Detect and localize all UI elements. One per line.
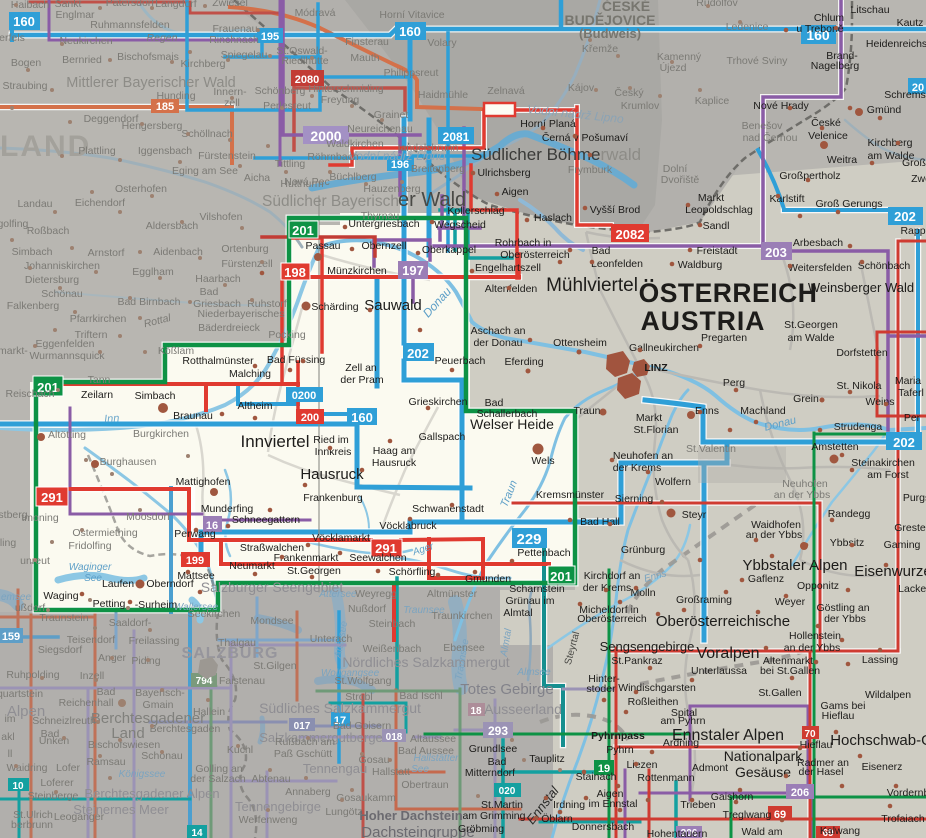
svg-text:Windischgarsten: Windischgarsten [618,682,696,694]
svg-text:Freyung: Freyung [321,94,360,106]
svg-text:Malching: Malching [229,368,271,380]
svg-text:Roßbach: Roßbach [27,225,70,237]
svg-text:Fridolfing: Fridolfing [68,540,111,552]
svg-text:Altheim: Altheim [237,400,272,412]
svg-text:der Hasel: der Hasel [799,766,844,778]
svg-text:10: 10 [12,781,24,792]
svg-text:Mühlviertel: Mühlviertel [546,275,638,296]
svg-text:Oberösterreich: Oberösterreich [500,249,570,261]
svg-text:Schörfling: Schörfling [389,566,436,578]
svg-text:der Ybbs: der Ybbs [824,613,866,625]
svg-text:See: See [84,573,102,584]
svg-text:Innkreis: Innkreis [315,446,352,458]
svg-text:Machland: Machland [740,405,786,417]
svg-text:Ruhpolding: Ruhpolding [6,669,59,681]
svg-text:Aldersbach: Aldersbach [146,220,199,232]
svg-text:Simbach: Simbach [12,246,53,258]
svg-text:14: 14 [191,828,203,838]
svg-text:Zelnavá: Zelnavá [487,85,525,97]
svg-text:Kalwang: Kalwang [820,825,860,837]
svg-text:der Krems: der Krems [613,462,661,474]
svg-text:Randegg: Randegg [828,508,871,520]
svg-text:berbrunn: berbrunn [11,819,53,831]
svg-text:Peuerbach: Peuerbach [435,355,486,367]
svg-text:Volary: Volary [427,37,457,49]
svg-text:Dvořiště: Dvořiště [661,174,700,186]
svg-text:Amstetten: Amstetten [811,441,858,453]
svg-text:Greste: Greste [894,522,926,534]
svg-text:Pettenbach: Pettenbach [517,547,570,559]
svg-text:Büchlberg: Büchlberg [329,171,376,183]
svg-text:Südlicher Böhmerwald: Südlicher Böhmerwald [471,145,641,164]
svg-text:Schallerbach: Schallerbach [477,408,538,420]
svg-text:Südlicher Bayerisch: Südlicher Bayerisch [262,193,399,210]
svg-text:Hollenstein: Hollenstein [789,630,841,642]
svg-text:Markt: Markt [636,412,662,424]
svg-text:Taferl: Taferl [898,387,924,399]
svg-text:Gröbming: Gröbming [458,823,504,835]
svg-text:Karlstift: Karlstift [769,193,804,205]
svg-text:Haag am: Haag am [373,445,416,457]
svg-text:291: 291 [41,490,63,505]
svg-text:Liezen: Liezen [627,759,658,771]
svg-text:Zeilarn: Zeilarn [81,389,113,401]
svg-text:Iggensbach: Iggensbach [138,145,192,157]
svg-text:Eichendorf: Eichendorf [75,197,125,209]
svg-text:Gesäuse: Gesäuse [735,764,791,780]
svg-text:Sauwald: Sauwald [364,297,422,314]
svg-text:Großraming: Großraming [676,594,732,606]
svg-text:Dorfstetten: Dorfstetten [836,347,888,359]
svg-text:160: 160 [351,410,373,425]
svg-text:Gmain: Gmain [143,699,174,711]
svg-text:Kájov: Kájov [568,82,595,94]
svg-text:Strudenga: Strudenga [834,421,883,433]
svg-text:Weitersfelden: Weitersfelden [788,262,852,274]
svg-text:Ardning: Ardning [663,737,699,749]
svg-text:Waginger: Waginger [69,562,112,573]
svg-text:Eisenwurze: Eisenwurze [854,563,926,580]
svg-text:Neumarkt: Neumarkt [229,560,275,572]
svg-text:St.Georgen: St.Georgen [784,319,838,331]
svg-text:an der Ybbs: an der Ybbs [774,489,830,501]
svg-text:Pyhrnpass: Pyhrnpass [591,730,645,742]
svg-text:Vöcklabruck: Vöcklabruck [379,520,437,532]
svg-text:Litschau: Litschau [850,4,889,16]
svg-text:Leoganger: Leoganger [54,811,105,823]
svg-text:erfels: erfels [0,32,25,44]
svg-text:Hausruck: Hausruck [372,457,417,469]
svg-text:Plattling: Plattling [78,145,116,157]
svg-text:Grünau im: Grünau im [505,595,554,607]
svg-text:Hochschwab-Gr: Hochschwab-Gr [830,732,926,749]
svg-text:Kautz: Kautz [897,17,924,29]
svg-text:Gaflenz: Gaflenz [748,573,784,585]
svg-text:Wurmannsquick: Wurmannsquick [29,350,105,362]
svg-text:Gmünd: Gmünd [867,104,902,116]
svg-text:Bernried: Bernried [62,54,102,66]
svg-text:im Ennstal: im Ennstal [588,798,637,810]
svg-text:Lofer: Lofer [56,762,80,774]
svg-text:Fürstenzell: Fürstenzell [221,258,272,270]
svg-text:0200: 0200 [292,390,316,402]
svg-text:Gaishorn: Gaishorn [711,791,754,803]
svg-text:Horní Vitavice: Horní Vitavice [379,9,444,21]
svg-text:Schwanenstadt: Schwanenstadt [412,503,484,515]
svg-text:Nußdorf: Nußdorf [348,603,386,615]
svg-text:Simbach: Simbach [135,390,176,402]
svg-text:Burghausen: Burghausen [100,456,157,468]
svg-text:Neuhofen an: Neuhofen an [613,450,673,462]
svg-text:Purgst: Purgst [903,492,926,504]
svg-text:Almsee: Almsee [516,667,551,678]
svg-text:195: 195 [261,31,279,43]
svg-text:Rudolfov: Rudolfov [696,0,738,9]
svg-text:Steinakirchen: Steinakirchen [851,457,915,469]
svg-text:Fürstenstein: Fürstenstein [198,150,256,162]
svg-text:Almtal: Almtal [503,607,532,619]
svg-text:Straßwalchen: Straßwalchen [240,542,304,554]
svg-text:Rotthalmünster: Rotthalmünster [182,355,254,367]
svg-text:Módravá: Módravá [295,7,336,19]
svg-text:Gosau: Gosau [359,754,390,766]
svg-text:Bad Goisern: Bad Goisern [333,720,392,732]
svg-text:nad Černou: nad Černou [743,131,798,144]
svg-text:Innviertel: Innviertel [241,432,310,451]
svg-text:Wald am: Wald am [741,826,782,838]
svg-text:Maria: Maria [895,375,921,387]
svg-text:Donnersbach: Donnersbach [572,821,635,833]
svg-text:203: 203 [765,245,787,260]
svg-text:293: 293 [488,724,508,738]
svg-text:Laufen: Laufen [102,578,134,590]
svg-text:ll: ll [8,748,13,760]
svg-text:Piding: Piding [131,655,160,667]
svg-text:Frankenburg: Frankenburg [303,492,363,504]
svg-text:Bad Hall: Bad Hall [580,516,620,528]
svg-text:am Pyhrn: am Pyhrn [661,715,706,727]
svg-text:Oberösterreichische: Oberösterreichische [656,613,790,630]
svg-text:Attersee: Attersee [318,589,357,600]
svg-text:Königssee: Königssee [119,769,166,780]
svg-text:Oberösterreich: Oberösterreich [577,613,647,625]
svg-text:Haarbach: Haarbach [195,273,241,285]
svg-text:Haidmühle: Haidmühle [418,89,468,101]
svg-text:Aidenbach: Aidenbach [153,246,203,258]
svg-text:Černá v Pošumaví: Černá v Pošumaví [542,131,628,144]
svg-text:Hallstätter: Hallstätter [413,753,459,764]
svg-text:Grieskirchen: Grieskirchen [409,396,468,408]
svg-text:Neukirchen: Neukirchen [59,35,112,47]
svg-text:Obertraun: Obertraun [401,779,448,791]
svg-text:Johanniskirchen: Johanniskirchen [24,260,100,272]
svg-text:Hunding: Hunding [156,90,195,102]
svg-text:Opponitz: Opponitz [797,580,839,592]
svg-text:160: 160 [399,24,421,39]
svg-text:Rapp: Rapp [900,225,925,237]
svg-text:201: 201 [550,569,572,584]
svg-text:Schrems: Schrems [884,89,925,101]
svg-text:Engelhartszell: Engelhartszell [475,262,541,274]
svg-text:Falkenberg: Falkenberg [7,300,60,312]
svg-text:(Budweis): (Budweis) [579,26,641,41]
svg-text:Ruhmannsfelden: Ruhmannsfelden [90,19,170,31]
svg-text:Grünburg: Grünburg [621,544,666,556]
svg-text:Annaberg: Annaberg [285,786,331,798]
svg-text:Irdning: Irdning [553,799,585,811]
svg-text:Trhové Sviny: Trhové Sviny [727,55,789,67]
svg-text:Gmunden: Gmunden [465,573,511,585]
svg-text:Weißenbach: Weißenbach [363,643,422,655]
svg-text:Sandl: Sandl [703,220,730,232]
svg-text:Nové Hrady: Nové Hrady [753,100,809,112]
svg-text:Waging: Waging [43,590,78,602]
svg-text:Traunstein: Traunstein [39,612,88,624]
svg-text:St.Gilgen: St.Gilgen [253,660,296,672]
svg-text:Perg: Perg [723,377,745,389]
svg-text:Mitterndorf: Mitterndorf [465,767,515,779]
svg-text:Aschach an: Aschach an [471,325,526,337]
svg-text:Horní Planá: Horní Planá [520,118,576,130]
svg-text:Hallein: Hallein [193,706,225,718]
svg-text:Mauth: Mauth [350,52,379,64]
svg-text:Aicha: Aicha [244,172,270,184]
svg-text:Wegscheid: Wegscheid [434,219,486,231]
svg-text:Altötting: Altötting [48,429,86,441]
svg-text:Tittling: Tittling [275,158,306,170]
svg-text:Neureichenau: Neureichenau [347,123,413,135]
svg-text:-Surheim: -Surheim [135,599,178,611]
svg-text:198: 198 [284,265,306,280]
svg-text:185: 185 [156,101,174,113]
svg-text:Tauplitz: Tauplitz [529,753,565,765]
svg-text:Obernzell: Obernzell [362,240,407,252]
svg-text:202: 202 [407,346,429,361]
svg-text:Riedlhütte: Riedlhütte [281,55,328,67]
svg-text:Seewalchen: Seewalchen [349,552,406,564]
svg-text:Kuchl: Kuchl [227,744,253,756]
svg-text:Ortenburg: Ortenburg [221,243,268,255]
svg-text:229: 229 [516,531,541,548]
svg-text:Ybbstaler Alpen: Ybbstaler Alpen [742,557,847,574]
svg-text:Iandelsbrunn: Iandelsbrunn [398,142,459,154]
svg-text:Leopoldschlag: Leopoldschlag [685,204,753,216]
svg-text:Leonfelden: Leonfelden [591,258,643,270]
svg-text:018: 018 [386,732,403,743]
svg-text:Petting: Petting [93,598,126,610]
svg-text:Rinchnach: Rinchnach [209,34,259,46]
svg-text:Thyrnau: Thyrnau [361,210,400,222]
svg-text:Eggenfelden: Eggenfelden [36,338,95,350]
svg-text:Zwe: Zwe [911,173,926,185]
svg-text:Schneegattern: Schneegattern [232,514,300,526]
svg-text:200: 200 [301,412,319,424]
svg-text:Sierning: Sierning [615,493,654,505]
svg-text:Traunkirchen: Traunkirchen [432,610,493,622]
svg-text:Hausruck: Hausruck [300,466,364,483]
svg-text:Bad Füssing: Bad Füssing [267,354,326,366]
svg-text:Zell an: Zell an [345,362,377,374]
svg-text:Scharnstein: Scharnstein [509,583,565,595]
svg-text:Niederbayerisches: Niederbayerisches [198,308,285,320]
svg-text:Aigen: Aigen [502,186,529,198]
svg-text:206: 206 [791,787,809,799]
svg-text:Bischofsmais: Bischofsmais [117,51,179,63]
svg-text:ÖSTERREICH: ÖSTERREICH [639,278,818,308]
svg-text:Pfarrkirchen: Pfarrkirchen [70,313,127,325]
svg-text:Ybbsitz: Ybbsitz [830,537,864,549]
svg-text:Saaldorf-: Saaldorf- [109,617,152,629]
svg-text:Benešov: Benešov [742,120,784,132]
svg-text:199: 199 [186,555,204,567]
svg-text:Groß Gerungs: Groß Gerungs [815,198,882,210]
svg-text:bei St.Gallen: bei St.Gallen [760,665,820,677]
svg-text:Ottensheim: Ottensheim [553,337,607,349]
svg-text:am Walde: am Walde [788,332,835,344]
svg-text:Eisenerz: Eisenerz [862,761,903,773]
svg-text:Stainach: Stainach [576,771,617,783]
svg-text:LINZ: LINZ [644,362,668,374]
svg-text:St. Nikola: St. Nikola [837,380,882,392]
svg-text:2082: 2082 [616,227,645,242]
svg-text:Rohrbach in: Rohrbach in [495,237,552,249]
svg-text:Siegsdorf: Siegsdorf [38,644,82,656]
svg-text:Unterlaussa: Unterlaussa [691,665,747,677]
svg-text:Burgkirchen: Burgkirchen [133,428,189,440]
svg-text:ngolfing: ngolfing [0,218,29,230]
svg-text:Vordernb: Vordernb [887,787,926,799]
svg-text:Totes Gebirge: Totes Gebirge [460,681,553,698]
svg-text:quartstein: quartstein [0,688,43,700]
svg-text:Křemže: Křemže [582,43,618,55]
svg-text:Treglwang: Treglwang [723,809,772,821]
svg-text:Lungötz: Lungötz [325,806,362,818]
svg-text:Inn: Inn [104,412,120,425]
svg-text:Oberndorf: Oberndorf [146,578,193,590]
svg-text:Ulrichsberg: Ulrichsberg [477,167,530,179]
svg-text:Ebensee: Ebensee [443,642,485,654]
svg-text:197: 197 [402,263,424,278]
svg-text:Reichenhall: Reichenhall [59,697,114,709]
svg-text:Kremsmünster: Kremsmünster [536,489,605,501]
svg-text:Faistenau: Faistenau [219,675,265,687]
svg-text:Hengersberg: Hengersberg [122,120,183,132]
svg-text:Bayerisch-: Bayerisch- [135,687,185,699]
svg-text:Perlesreut: Perlesreut [263,100,311,112]
svg-text:Waldburg: Waldburg [678,259,723,271]
svg-text:am Grimming: am Grimming [462,810,525,822]
svg-text:Kirchberg: Kirchberg [868,137,913,149]
svg-text:Freilassing: Freilassing [129,635,180,647]
svg-text:Weyer: Weyer [775,596,806,608]
svg-text:Zwiesel: Zwiesel [212,0,248,9]
svg-text:Tennengau: Tennengau [303,761,367,776]
svg-text:Ledenice: Ledenice [726,21,769,33]
svg-text:Ramsau: Ramsau [86,756,125,768]
svg-text:Traun: Traun [573,405,600,417]
svg-text:Braunau: Braunau [173,410,213,422]
svg-text:Vöcklamarkt: Vöcklamarkt [312,532,370,544]
svg-text:Patersdorf: Patersdorf [106,0,155,9]
svg-text:Gaming: Gaming [884,539,921,551]
svg-text:Moosdorf: Moosdorf [126,511,170,523]
svg-text:Pregarten: Pregarten [701,332,747,344]
svg-text:Freistadt: Freistadt [697,245,738,257]
svg-text:Abtenau: Abtenau [251,773,290,785]
svg-text:Paß Gschütt: Paß Gschütt [274,748,332,760]
svg-text:Steinbach: Steinbach [369,618,416,630]
svg-text:České: České [811,116,841,129]
svg-text:Inzell: Inzell [80,670,105,682]
svg-text:Voralpen: Voralpen [696,645,759,662]
svg-text:am Forst: am Forst [867,469,909,481]
svg-text:Seekirchen: Seekirchen [188,608,241,620]
svg-text:Eferding: Eferding [504,356,543,368]
svg-text:Hauzenberg: Hauzenberg [363,183,420,195]
svg-text:Hohentauern: Hohentauern [647,828,708,838]
svg-text:Schönau: Schönau [41,288,83,300]
svg-text:Haslach: Haslach [534,212,572,224]
svg-text:Tennengebirge: Tennengebirge [235,799,321,814]
svg-text:Weyregg: Weyregg [355,588,397,600]
svg-text:Werfenweng: Werfenweng [239,814,298,826]
svg-text:Waldkirchen: Waldkirchen [326,138,384,150]
svg-text:Nová Pec: Nová Pec [284,176,330,188]
svg-text:Ausseerland: Ausseerland [484,701,562,717]
svg-text:Schönbach: Schönbach [858,260,911,272]
svg-text:St.Georgen: St.Georgen [287,565,341,577]
svg-text:Bad Birnbach: Bad Birnbach [117,296,180,308]
svg-text:St.Pankraz: St.Pankraz [611,655,662,667]
svg-text:ling: ling [0,537,16,549]
svg-text:Per: Per [904,412,921,424]
svg-text:Lackenh: Lackenh [898,583,926,595]
svg-text:Gallspach: Gallspach [419,431,466,443]
svg-text:Passau: Passau [305,240,340,252]
svg-text:St.Valentin: St.Valentin [686,443,736,455]
svg-text:Regen: Regen [147,32,178,44]
svg-text:Wels: Wels [531,455,554,467]
svg-text:Tann: Tann [88,374,111,386]
svg-text:Kollerschlag: Kollerschlag [447,205,504,217]
svg-text:Admont: Admont [692,762,728,774]
svg-text:Waidring: Waidring [6,762,47,774]
svg-text:Finsterau: Finsterau [345,36,389,48]
svg-text:202: 202 [893,435,915,450]
svg-text:Arnstorf: Arnstorf [88,247,125,259]
svg-text:Weitra: Weitra [827,154,857,166]
svg-text:Rußbach am: Rußbach am [275,736,335,748]
svg-text:emsee: emsee [1,592,31,603]
svg-text:Schönberg: Schönberg [255,85,306,97]
svg-text:Reischach: Reischach [5,388,54,400]
svg-text:Vyšší Brod: Vyšší Brod [590,204,641,216]
svg-text:Altmünster: Altmünster [427,588,478,600]
svg-text:Velenice: Velenice [808,130,848,142]
svg-text:202: 202 [894,209,916,224]
svg-text:Trieben: Trieben [680,799,715,811]
svg-text:Philippsreut: Philippsreut [384,67,439,79]
svg-text:Landau: Landau [17,198,52,210]
svg-text:Gosaukamm: Gosaukamm [336,792,396,804]
svg-text:Lassing: Lassing [862,654,898,666]
svg-text:der Pram: der Pram [340,374,383,386]
svg-text:umarkt-: umarkt- [0,345,28,357]
svg-text:Rottenmann: Rottenmann [637,772,694,784]
svg-text:Kirchberg: Kirchberg [181,58,226,70]
svg-text:160: 160 [13,14,35,29]
svg-text:Hieflau: Hieflau [822,710,855,722]
